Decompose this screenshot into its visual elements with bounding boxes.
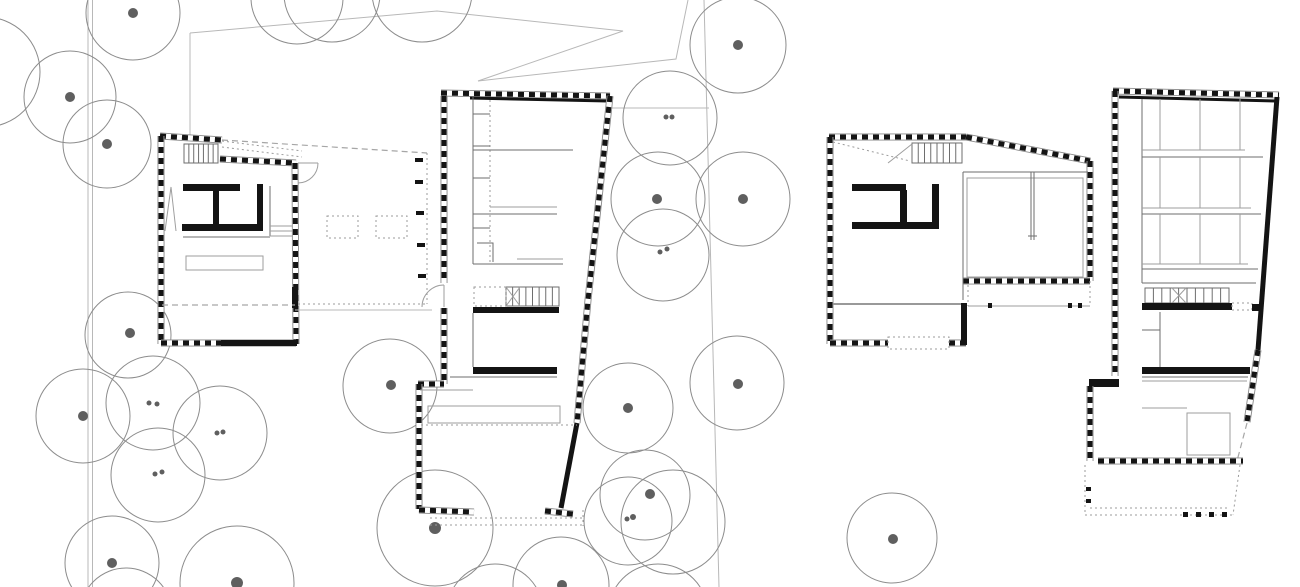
wall-east-black (561, 423, 577, 508)
stair-wall-black (1142, 303, 1232, 310)
post-tick (417, 243, 425, 247)
canopy-dotted (222, 147, 302, 157)
tree-trunk-dot (160, 470, 165, 475)
tree-trunk-dot (625, 517, 630, 522)
tree-trunk-dot (221, 430, 226, 435)
tree-crown (173, 386, 267, 480)
post-tick (416, 211, 424, 215)
tree-crown-crown (284, 0, 380, 42)
building-b-ground-floor (418, 93, 610, 526)
deck2-tick (1086, 487, 1091, 491)
tree-trunk-dot (658, 250, 663, 255)
tree-trunk-dot (665, 247, 670, 252)
tree-crown (617, 209, 709, 301)
tree-crown (513, 537, 609, 587)
tree-crown (65, 516, 159, 587)
tree-trunk-dot (557, 580, 567, 587)
fixture-table (186, 256, 263, 270)
stair-wall-black (1252, 304, 1262, 311)
wall-south-east (545, 511, 573, 514)
tree-crown (111, 428, 205, 522)
balcony-tick (1078, 303, 1082, 308)
tree-trunk-dot (102, 139, 112, 149)
porch-wall-black (961, 303, 967, 345)
tree-crown-crown (447, 564, 543, 587)
post-tick (415, 180, 423, 184)
wall-black-mid (473, 367, 557, 374)
wall-break (165, 187, 176, 231)
site-boundaries (88, 0, 719, 587)
deck2-tick (1196, 512, 1201, 517)
tree-trunk-dot (888, 534, 898, 544)
porch-opening-dotted (888, 337, 949, 349)
tree-trunk-dot (125, 328, 135, 338)
tree-trunk-dot (65, 92, 75, 102)
building-a-ground-floor (160, 136, 318, 346)
deck2-tick (1183, 512, 1188, 517)
plot-line-northeast (478, 0, 688, 81)
tree-trunk-dot (429, 522, 441, 534)
tree-trunk-dot (630, 514, 636, 520)
door-swing (298, 163, 318, 183)
balcony-tick (1068, 303, 1072, 308)
wall-east-dashed (1237, 423, 1247, 461)
core-wall (257, 184, 263, 231)
tree-trunk-dot (733, 40, 743, 50)
tree-trunk-dot (215, 431, 220, 436)
core-wall (852, 222, 939, 229)
trees (0, 0, 937, 587)
skylight-dotted (327, 216, 358, 238)
tree-crown-crown (608, 564, 708, 587)
balcony-tick (988, 303, 992, 308)
stair-wall-black (473, 307, 559, 313)
tree-trunk-dot (733, 379, 743, 389)
tree-trunk-dot (738, 194, 748, 204)
wall-black-mid (1142, 367, 1250, 374)
plot-line-north (190, 11, 623, 81)
core-wall (213, 191, 219, 228)
tree-trunk-dot (155, 402, 160, 407)
wing-room (967, 178, 1083, 277)
floor-plan-svg (0, 0, 1300, 587)
tree-crown-crown (0, 17, 40, 127)
room-ell (477, 243, 493, 262)
core-wall (932, 184, 939, 229)
building-d-upper-floor (1085, 91, 1279, 517)
stair-landing-dotted (474, 287, 506, 306)
deck-bench (428, 406, 560, 423)
tree-trunk-dot (623, 403, 633, 413)
architectural-site-plan (0, 0, 1300, 587)
tree-crown-crown (372, 0, 472, 42)
door-swing (422, 285, 444, 307)
tree-trunk-dot (645, 489, 655, 499)
building-c-upper-floor (829, 137, 1090, 349)
tree-trunk-dot (670, 115, 675, 120)
tree-crown (600, 450, 690, 540)
core-wall (183, 184, 240, 191)
tree-trunk-dot (231, 577, 243, 587)
deck2-tick (1209, 512, 1214, 517)
stair-diagonal (888, 144, 912, 163)
stair-wall-dotted (1232, 303, 1252, 310)
tree-crown-crown (621, 470, 725, 574)
post-tick (418, 274, 426, 278)
wall-jog-black (1089, 379, 1119, 387)
core-wall (852, 184, 906, 191)
tree-trunk-dot (147, 401, 152, 406)
tree-trunk-dot (386, 380, 396, 390)
post-tick (415, 158, 423, 162)
tree-trunk-dot (128, 8, 138, 18)
deck-skylight (1187, 413, 1230, 455)
tree-trunk-dot (664, 115, 669, 120)
skylight-dotted (376, 216, 407, 238)
deck2-tick (1222, 512, 1227, 517)
wall-east-black (1258, 97, 1277, 350)
tree-trunk-dot (78, 411, 88, 421)
wall-top-slope-core (966, 137, 1090, 161)
deck2-tick (1086, 499, 1091, 503)
dashed-diagonal (833, 142, 910, 161)
tree-trunk-dot (107, 558, 117, 568)
deck2-dotted (1233, 465, 1240, 515)
tree-trunk-dot (153, 472, 158, 477)
tree-trunk-dot (652, 194, 662, 204)
tree-crown-crown (251, 0, 343, 44)
wall-black-south (221, 340, 297, 346)
core-wall (182, 224, 263, 231)
